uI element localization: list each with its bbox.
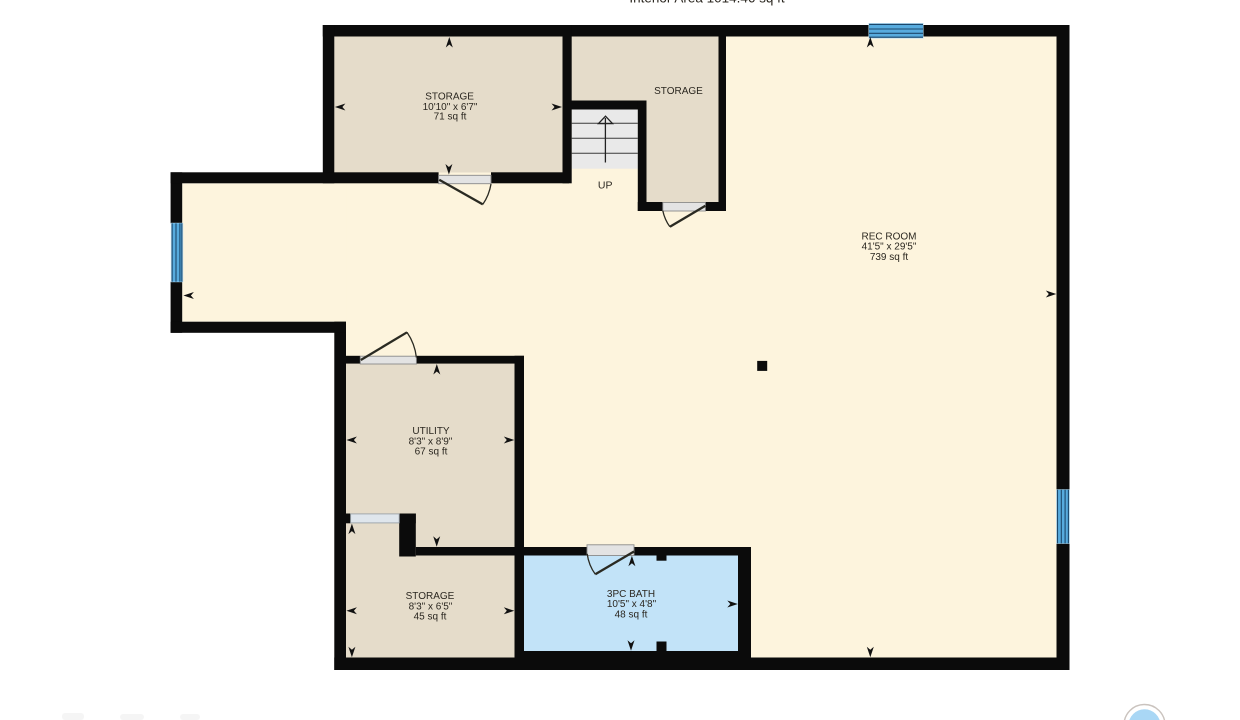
svg-text:739 sq ft: 739 sq ft: [870, 252, 909, 263]
svg-text:UP: UP: [598, 179, 613, 191]
svg-text:45 sq ft: 45 sq ft: [414, 612, 447, 623]
svg-text:Interior Area 1014.46 sq ft: Interior Area 1014.46 sq ft: [629, 0, 785, 5]
svg-text:71 sq ft: 71 sq ft: [434, 112, 467, 123]
svg-text:67 sq ft: 67 sq ft: [415, 447, 448, 458]
svg-text:48 sq ft: 48 sq ft: [615, 609, 648, 620]
svg-text:STORAGE: STORAGE: [654, 86, 703, 97]
